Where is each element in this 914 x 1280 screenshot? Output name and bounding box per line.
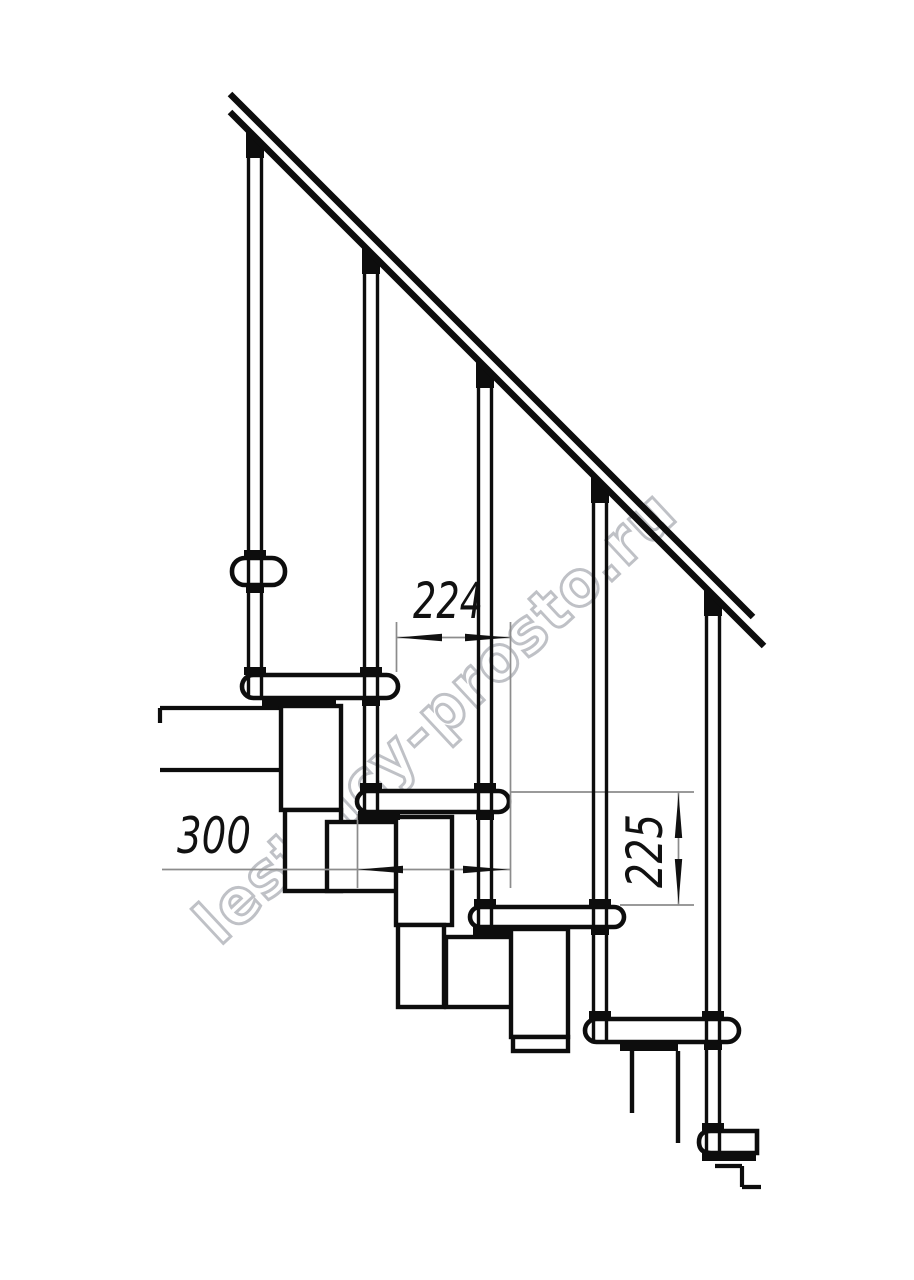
staircase-drawing-page: lestnicy-prosto.ru [0, 0, 914, 1280]
module-box [396, 817, 452, 925]
module-box [511, 929, 568, 1037]
baluster-1 [244, 131, 266, 696]
arrowhead [675, 793, 682, 838]
attachment-band [262, 697, 336, 706]
handrail [230, 94, 764, 646]
module-box [513, 1037, 568, 1051]
tread-2 [242, 675, 398, 698]
dimension-rise-label: 225 [616, 814, 674, 888]
attachment-band [473, 926, 510, 935]
tread-3 [357, 791, 509, 812]
staircase-technical-drawing: lestnicy-prosto.ru [0, 0, 914, 1280]
arrowhead [397, 634, 442, 641]
attachment-band [358, 811, 400, 820]
handrail-bottom-edge [230, 112, 764, 646]
module-left-arm [160, 708, 283, 770]
module-box [446, 937, 518, 1007]
module-box [327, 822, 404, 891]
arrowhead [463, 866, 508, 873]
module-box-open [632, 1051, 678, 1143]
dimension-run-label: 224 [413, 572, 483, 630]
arrowhead [675, 859, 682, 904]
module-chain [160, 706, 761, 1187]
module-bottom-cut [715, 1166, 761, 1187]
dimension-rise: 225 [510, 792, 694, 905]
tread-1 [232, 558, 285, 585]
module-box [281, 706, 341, 810]
attachment-band [620, 1041, 678, 1051]
attachment-band [702, 1151, 756, 1161]
module-box [398, 925, 444, 1007]
dimension-tread-depth-label: 300 [177, 807, 251, 865]
baluster-5 [702, 589, 724, 1151]
